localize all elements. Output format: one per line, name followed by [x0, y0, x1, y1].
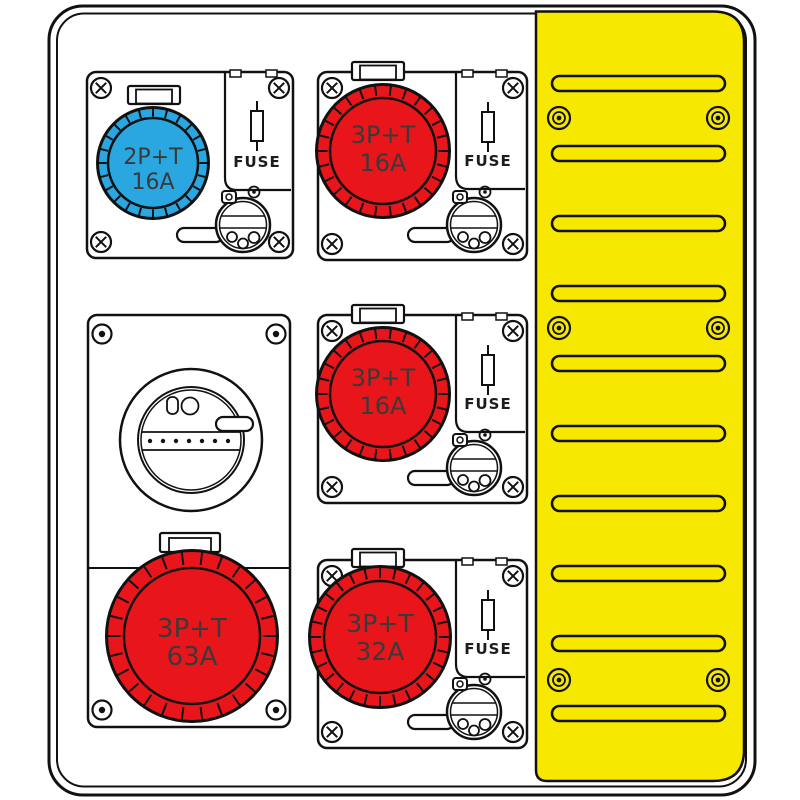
ventilation-slot: [552, 146, 725, 161]
socket-rating-line1: 3P+T: [351, 364, 416, 392]
socket-rib: [375, 85, 376, 96]
yellow-side-panel: [536, 12, 744, 782]
socket-rating-line2: 16A: [360, 149, 408, 177]
distribution-board-illustration: FUSE 2P+T 16A FUSE 3P+T 16A FUSE: [0, 0, 800, 800]
ventilation-slot: [552, 566, 725, 581]
switch-band-dot: [200, 439, 204, 443]
socket-rating-line1: 3P+T: [157, 614, 227, 644]
socket-rib: [390, 206, 391, 217]
fuse-label: FUSE: [464, 640, 511, 658]
ventilation-slot: [552, 286, 725, 301]
socket-rating-line2: 32A: [356, 637, 405, 666]
module-cee-socket-blue-16a: FUSE 2P+T 16A: [87, 70, 293, 258]
socket-rib: [375, 328, 376, 339]
socket-rating-line2: 63A: [167, 642, 218, 672]
switch-band-dot: [148, 439, 152, 443]
ventilation-slot: [552, 216, 725, 231]
socket-rating-line1: 2P+T: [123, 145, 183, 170]
socket-rib: [390, 449, 391, 460]
socket-rib: [390, 328, 391, 339]
fuse-label: FUSE: [233, 153, 280, 171]
board-drawing: FUSE 2P+T 16A FUSE 3P+T 16A FUSE: [0, 0, 800, 800]
module-cee-socket-red-16a-middle: FUSE 3P+T 16A: [316, 305, 527, 503]
socket-rating-line2: 16A: [360, 392, 408, 420]
rotary-interlock-switch: [120, 369, 262, 511]
socket-rib: [375, 206, 376, 217]
fuse-label: FUSE: [464, 395, 511, 413]
module-cee-socket-red-16a-top: FUSE 3P+T 16A: [316, 62, 527, 260]
switch-band-dot: [213, 439, 217, 443]
socket-rib: [390, 85, 391, 96]
socket-rating-line1: 3P+T: [351, 121, 416, 149]
module-interlocked-socket-63a: 3P+T 63A: [88, 315, 290, 727]
ventilation-slot: [552, 426, 725, 441]
switch-band-dot: [226, 439, 230, 443]
socket-rating-line1: 3P+T: [346, 609, 414, 638]
ventilation-slot: [552, 356, 725, 371]
switch-band-dot: [161, 439, 165, 443]
fuse-label: FUSE: [464, 152, 511, 170]
switch-handle: [216, 417, 253, 431]
socket-rating-line2: 16A: [131, 170, 174, 195]
switch-band-dot: [174, 439, 178, 443]
switch-band-dot: [187, 439, 191, 443]
ventilation-slot: [552, 706, 725, 721]
module-cee-socket-red-32a: FUSE 3P+T 32A: [309, 549, 527, 748]
ventilation-slot: [552, 496, 725, 511]
ventilation-slot: [552, 636, 725, 651]
ventilation-slot: [552, 76, 725, 91]
socket-rib: [375, 449, 376, 460]
